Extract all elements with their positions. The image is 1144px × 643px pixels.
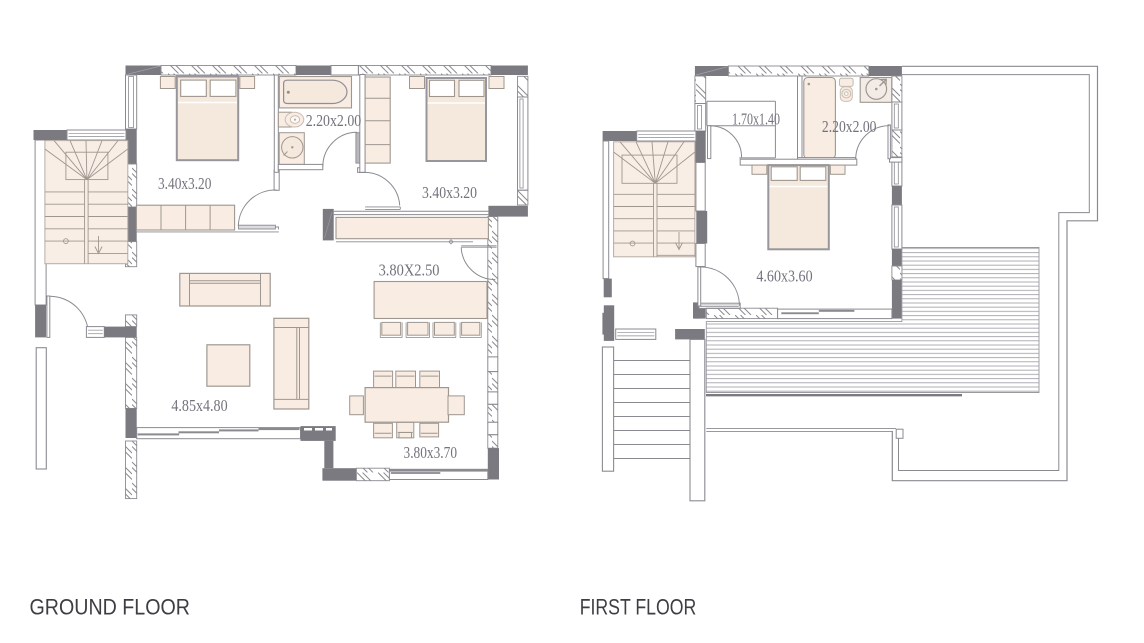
svg-text:4.85x4.80: 4.85x4.80 [171, 396, 227, 415]
svg-text:FIRST FLOOR: FIRST FLOOR [580, 595, 697, 620]
svg-text:3.40x3.20: 3.40x3.20 [158, 174, 211, 193]
svg-text:2.20x2.00: 2.20x2.00 [306, 111, 362, 130]
svg-text:4.60x3.60: 4.60x3.60 [756, 267, 812, 286]
svg-text:1.70x1.40: 1.70x1.40 [732, 110, 780, 129]
svg-text:GROUND FLOOR: GROUND FLOOR [30, 595, 191, 620]
svg-text:3.80x3.70: 3.80x3.70 [404, 443, 458, 462]
svg-text:3.80X2.50: 3.80X2.50 [379, 261, 440, 280]
svg-text:2.20x2.00: 2.20x2.00 [822, 117, 877, 136]
svg-text:3.40x3.20: 3.40x3.20 [422, 183, 477, 202]
